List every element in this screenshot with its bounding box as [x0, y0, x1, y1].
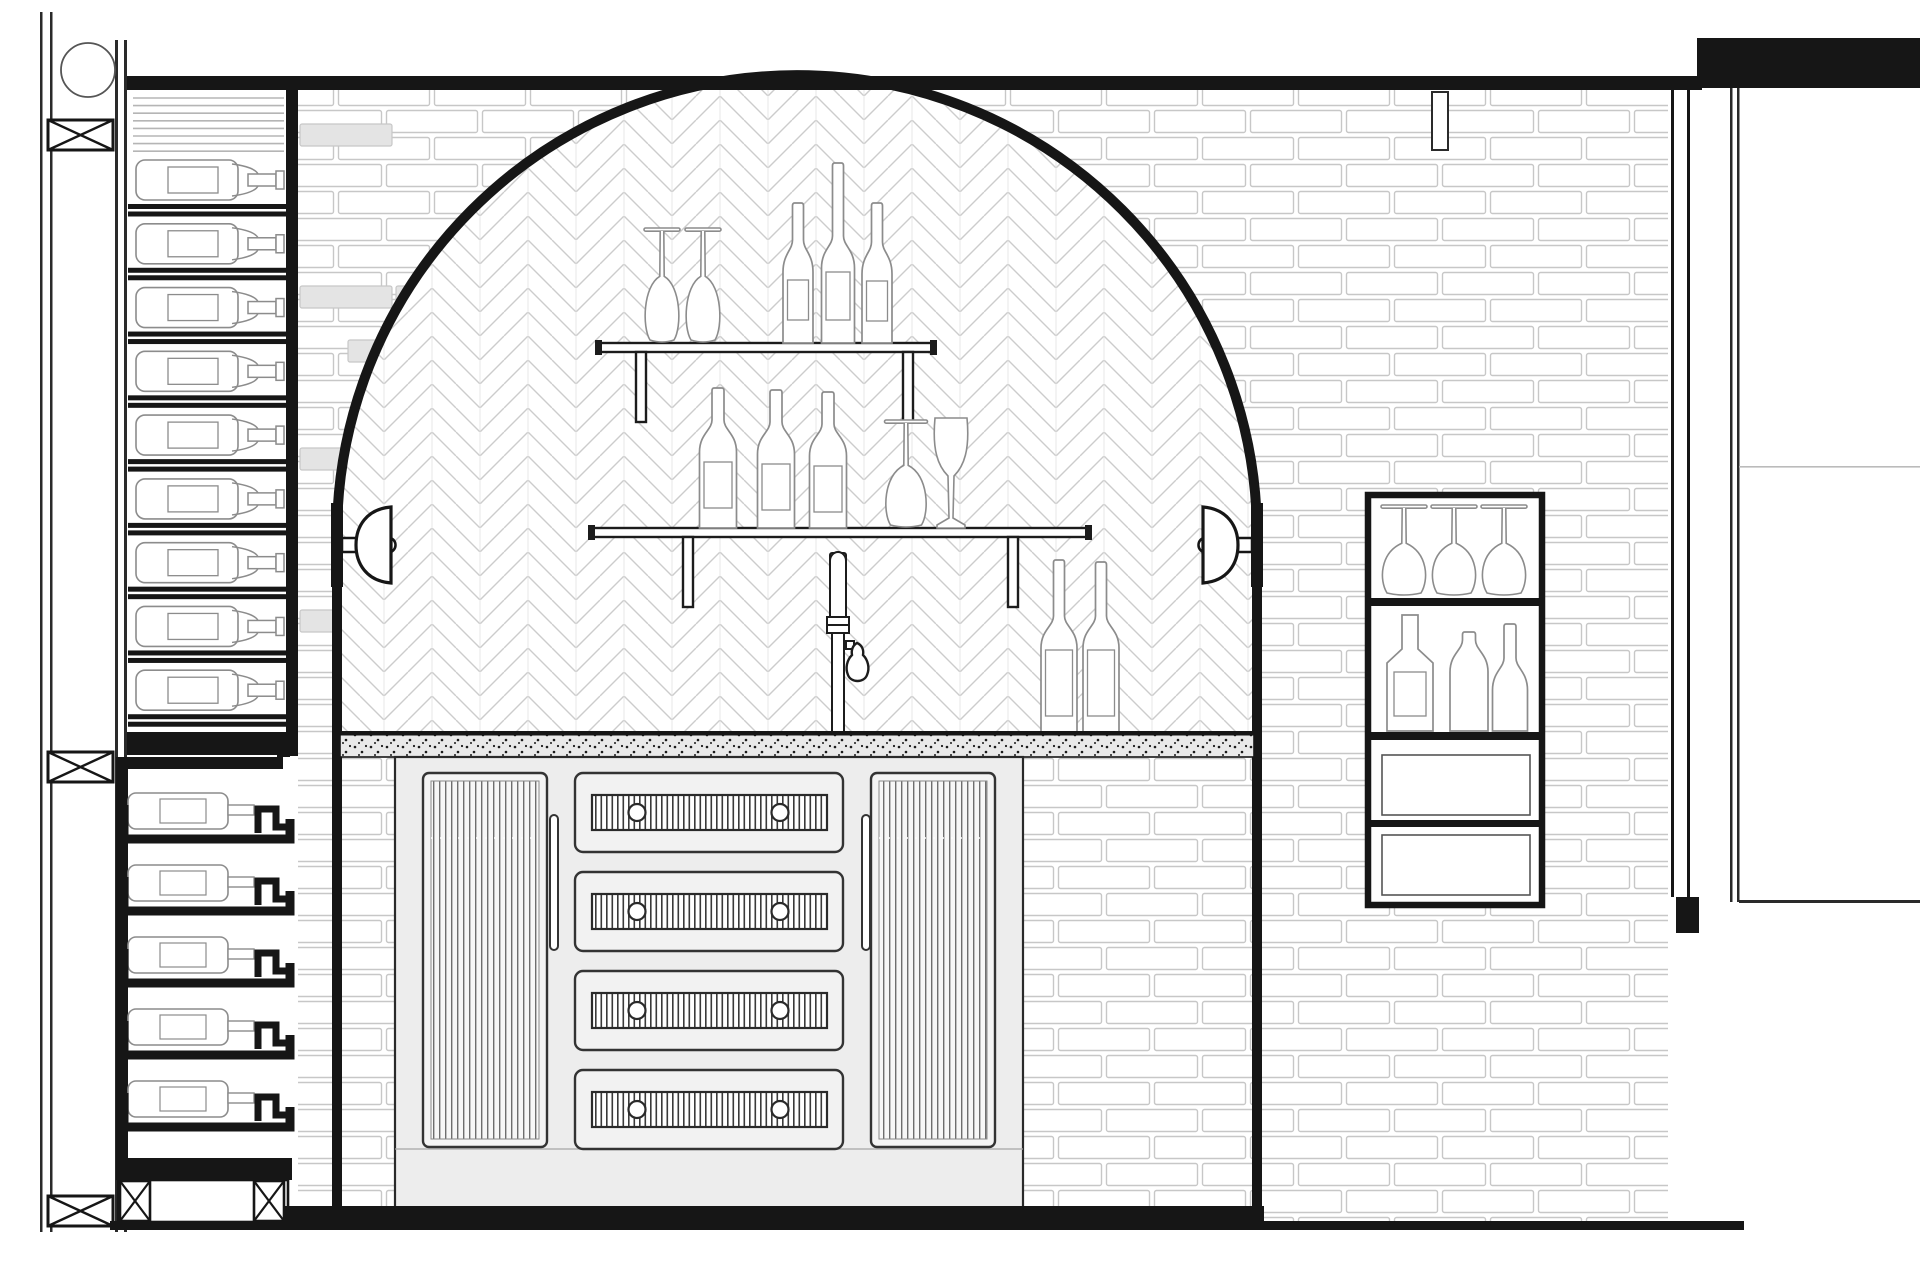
shelf-bracket [683, 537, 693, 607]
rack-separator [128, 275, 288, 280]
hanging-tab [1432, 92, 1448, 150]
bar-cabinet [395, 757, 1023, 1210]
rack-sill [127, 732, 298, 755]
bottle-lip [276, 171, 284, 189]
drawer-knob [772, 804, 789, 821]
bottle-lip [276, 490, 284, 508]
rack-separator [128, 467, 288, 472]
rack-separator [128, 714, 288, 719]
bottle-lip [276, 617, 284, 635]
bottle-label [1046, 650, 1073, 716]
drawer-knob [629, 804, 646, 821]
bottle-label [160, 871, 206, 895]
right-display-cabinet [1368, 495, 1542, 905]
shaded-brick [300, 124, 392, 146]
drawer [575, 773, 843, 852]
rack-separator [128, 395, 288, 400]
arch-jamb-right [1252, 737, 1262, 1223]
drawer-knob [629, 903, 646, 920]
glass-foot [685, 228, 721, 231]
drawer-reed-band [592, 993, 827, 1028]
bottle-label [826, 272, 850, 320]
bottle-neck [248, 429, 276, 441]
drawer-knob [772, 1002, 789, 1019]
rack-separator [128, 332, 288, 337]
drawer-reed-band [592, 795, 827, 830]
rack-separator [128, 523, 288, 528]
bottle-lip [276, 554, 284, 572]
rack-separator [128, 212, 288, 217]
bottle-neck [248, 493, 276, 505]
lower-wine-rack [116, 757, 292, 1222]
bottle-neck [228, 949, 254, 959]
reeded-door [871, 773, 995, 1147]
bottle-neck [248, 365, 276, 377]
lower-rack-bottom [116, 1158, 292, 1180]
drawer-knob [629, 1101, 646, 1118]
drawer-knob [772, 903, 789, 920]
shelf-bracket [636, 352, 646, 422]
bottle-label [160, 1015, 206, 1039]
drawer-reed-band [592, 894, 827, 929]
bottle-label [160, 799, 206, 823]
glass-foot [1481, 505, 1527, 508]
bottle-label [160, 1087, 206, 1111]
rack-separator [128, 658, 288, 663]
reeded-panel [879, 781, 987, 1139]
bottle-neck [248, 557, 276, 569]
drawer-knob [772, 1101, 789, 1118]
blank-panel [1382, 835, 1530, 895]
drawer [575, 872, 843, 951]
countertop [337, 731, 1257, 757]
glass-foot [1431, 505, 1477, 508]
bottle-neck [248, 174, 276, 186]
rack-separator [128, 339, 288, 344]
drawer-knob [629, 1002, 646, 1019]
lower-rack-top [116, 757, 283, 769]
bottle-lip [276, 426, 284, 444]
bottle-neck [248, 302, 276, 314]
rack-separator [128, 594, 288, 599]
bottle-label [168, 677, 218, 703]
bottle-label [168, 486, 218, 512]
bottle-lip [276, 681, 284, 699]
rack-separator [128, 459, 288, 464]
display-shelf [1368, 598, 1542, 606]
rack-separator [128, 204, 288, 209]
bottle-label [168, 613, 218, 639]
drawer-reed-band [592, 1092, 827, 1127]
shaded-brick [300, 286, 392, 308]
bottle-label [1394, 672, 1426, 716]
shelf-bracket [903, 352, 913, 422]
blank-panel [1382, 755, 1530, 815]
upper-wine-rack [127, 76, 298, 776]
bottle-label [1088, 650, 1115, 716]
rack-separator [128, 722, 288, 727]
bottle-lip [276, 235, 284, 253]
bottle-lip [276, 299, 284, 317]
shelf-bracket [1008, 537, 1018, 607]
bottle-label [168, 358, 218, 384]
pipe-circle [61, 43, 115, 97]
bottle-neck [228, 1093, 254, 1103]
bottle-label [168, 295, 218, 321]
architectural-drawing [0, 0, 1920, 1287]
rack-separator [128, 530, 288, 535]
bottle-label [168, 422, 218, 448]
glass-foot [885, 420, 928, 423]
bottle-neck [248, 620, 276, 632]
door-handle [862, 815, 870, 950]
wall-top-line [127, 76, 1702, 90]
bottle-label [762, 464, 790, 510]
adjacent-top-bar [1697, 38, 1920, 88]
elevation-canvas [0, 0, 1920, 1287]
bottle-label [168, 231, 218, 257]
reeded-panel [431, 781, 539, 1139]
bottle-label [168, 550, 218, 576]
bottle-neck [228, 877, 254, 887]
display-divider [1368, 820, 1542, 827]
rack-separator [128, 268, 288, 273]
adjacent-faint-line [1739, 466, 1920, 468]
drawer [575, 1070, 843, 1149]
bottle-neck [228, 1021, 254, 1031]
bottle-label [168, 167, 218, 193]
bottle-label [704, 462, 732, 508]
drawer [575, 971, 843, 1050]
rack-separator [128, 650, 288, 655]
reeded-door [423, 773, 547, 1147]
bottle-neck [228, 805, 254, 815]
door-handle [550, 815, 558, 950]
bottle-label [814, 466, 842, 512]
display-shelf [1368, 732, 1542, 740]
bottle-neck [248, 684, 276, 696]
adjacent-counter-line [1739, 900, 1920, 903]
blocking-x-icon [48, 120, 113, 150]
glass-foot [1381, 505, 1427, 508]
lower-rack-base [118, 1180, 288, 1222]
arch-jamb-left [332, 737, 342, 1223]
blocking-x-icon [48, 1196, 113, 1226]
bottle-neck [248, 238, 276, 250]
bottle-label [867, 281, 888, 321]
blocking-x-icon [48, 752, 113, 782]
bottle-label [160, 943, 206, 967]
bottle-lip [276, 362, 284, 380]
trim-base-block [1676, 897, 1699, 933]
rack-separator [128, 587, 288, 592]
bottle-label [788, 280, 809, 320]
rack-separator [128, 403, 288, 408]
glass-foot [644, 228, 680, 231]
